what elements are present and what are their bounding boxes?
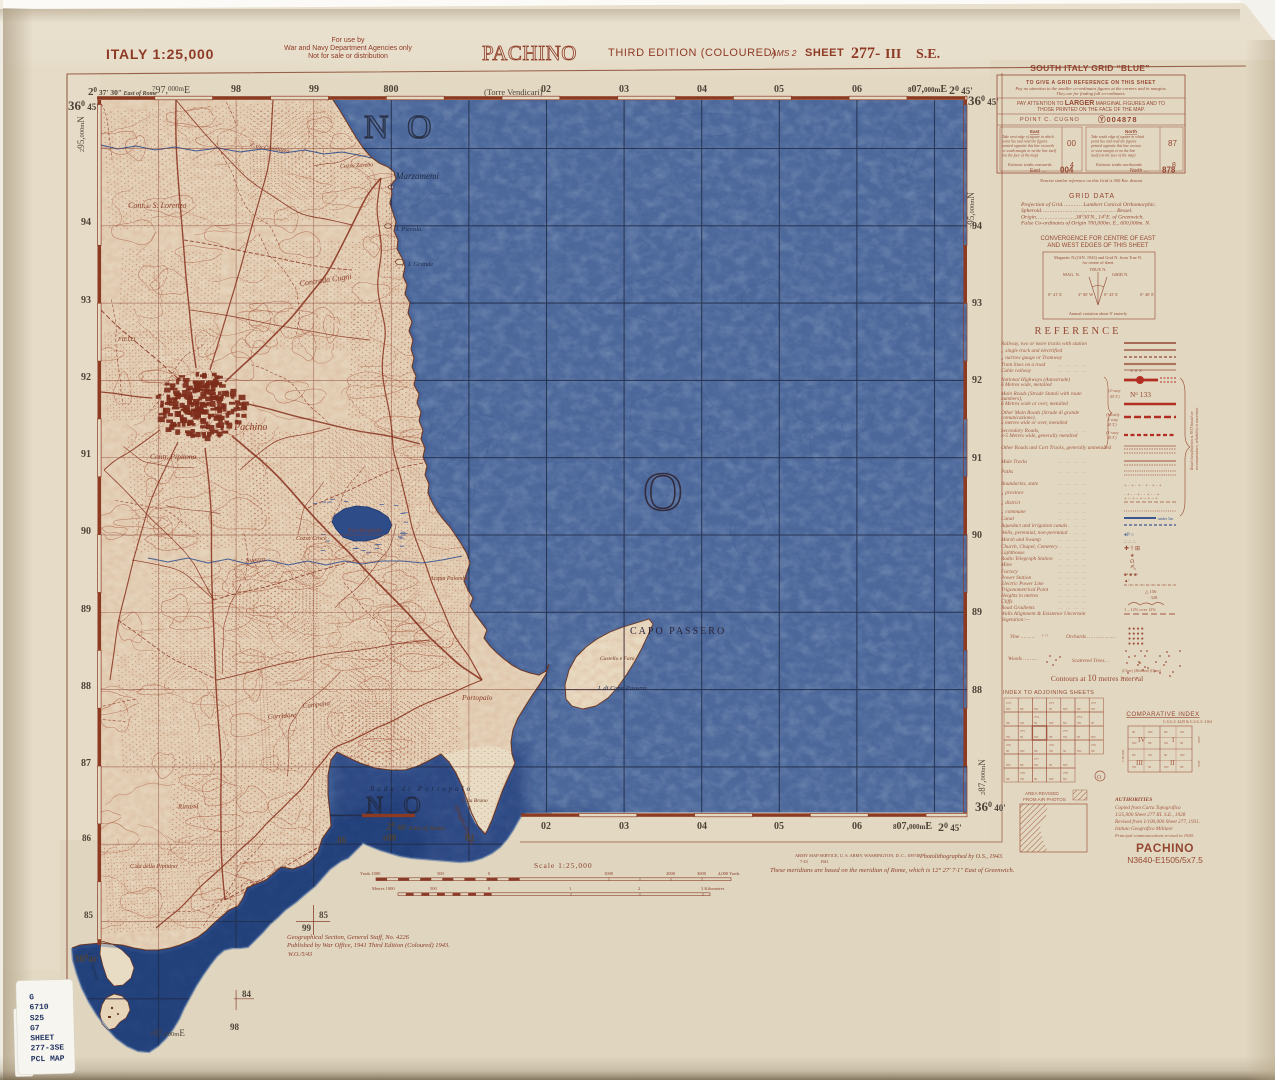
svg-text:99: 99 bbox=[302, 923, 312, 933]
svg-text:278: 278 bbox=[1063, 771, 1068, 775]
svg-text:Estimate tenths northwards: Estimate tenths northwards bbox=[1095, 162, 1142, 167]
svg-text:SE: SE bbox=[1034, 722, 1038, 725]
svg-text:06: 06 bbox=[852, 821, 862, 832]
svg-text:Acqua Palomba: Acqua Palomba bbox=[429, 576, 469, 582]
svg-text:… … … …: … … … … bbox=[1058, 500, 1087, 505]
svg-text:NE: NE bbox=[1049, 736, 1053, 739]
svg-text:Canal: Canal bbox=[1001, 516, 1014, 522]
svg-text:… … … …: … … … … bbox=[1058, 569, 1087, 574]
svg-text:Portopalo: Portopalo bbox=[461, 693, 493, 702]
svg-text:N O: N O bbox=[364, 109, 437, 146]
svg-text:NE: NE bbox=[1180, 766, 1184, 769]
svg-text:… … … …: … … … … bbox=[1058, 523, 1087, 528]
svg-text:MAG. N.: MAG. N. bbox=[1063, 272, 1080, 277]
svg-text:II: II bbox=[1170, 759, 1175, 767]
svg-text:… … … …: … … … … bbox=[1058, 469, 1087, 474]
svg-text:275: 275 bbox=[1063, 729, 1068, 733]
svg-text:SW: SW bbox=[1148, 754, 1153, 757]
svg-text:SOUTH ITALY GRID “BLUE”: SOUTH ITALY GRID “BLUE” bbox=[1030, 63, 1150, 73]
svg-text:Photolithographed by O.S., 194: Photolithographed by O.S., 1943. bbox=[919, 853, 1003, 860]
svg-text:800: 800 bbox=[384, 84, 399, 95]
svg-text:or west margin or on the: or west margin or on the line bbox=[1091, 149, 1135, 153]
svg-text:Svezza: Svezza bbox=[245, 554, 266, 565]
svg-text:… … … …: … … … … bbox=[1058, 530, 1087, 535]
svg-text:COMPARATIVE INDEX: COMPARATIVE INDEX bbox=[1126, 711, 1199, 718]
svg-text:90: 90 bbox=[81, 526, 91, 537]
svg-text:20 45': 20 45' bbox=[938, 820, 962, 834]
svg-text:I. Grande: I. Grande bbox=[407, 261, 433, 268]
svg-text:SE: SE bbox=[1020, 736, 1024, 739]
svg-text:GRID N.: GRID N. bbox=[1112, 272, 1129, 277]
svg-text:93: 93 bbox=[972, 298, 982, 309]
svg-text:3-5 Metres wide, generally met: 3-5 Metres wide, generally metalled bbox=[1001, 433, 1078, 439]
svg-text:88: 88 bbox=[972, 685, 982, 696]
svg-text:✕ ✕ ✕: ✕ ✕ ✕ bbox=[1130, 368, 1142, 373]
svg-text:NE: NE bbox=[1148, 742, 1152, 745]
svg-text:War and Navy Department Agenci: War and Navy Department Agencies only bbox=[284, 45, 412, 52]
svg-text:For use by: For use by bbox=[331, 37, 365, 44]
svg-text:86: 86 bbox=[82, 833, 92, 843]
svg-text:06: 06 bbox=[852, 84, 862, 95]
svg-text:05: 05 bbox=[774, 84, 784, 95]
svg-text:0° 46′ E: 0° 46′ E bbox=[1140, 292, 1154, 297]
svg-text:… … … …: … … … … bbox=[1058, 362, 1087, 367]
svg-text:Principal communications revis: Principal communications revised in 1940… bbox=[1114, 833, 1194, 838]
svg-text:O: O bbox=[1097, 775, 1102, 781]
svg-text:⛏: ⛏ bbox=[1130, 564, 1136, 571]
svg-text:They are for finding full co-o: They are for finding full co-ordinates. bbox=[1056, 91, 1125, 96]
svg-text:Annual variation about 8′ east: Annual variation about 8′ easterly bbox=[1069, 311, 1128, 316]
svg-text:277-3SE: 277-3SE bbox=[30, 1044, 64, 1054]
svg-text:86: 86 bbox=[337, 835, 347, 845]
svg-text:REFERENCE: REFERENCE bbox=[1034, 326, 1121, 337]
svg-text:NE: NE bbox=[1063, 778, 1067, 781]
svg-text:6710: 6710 bbox=[29, 1003, 49, 1013]
svg-text:point lies and read the f: point lies and read the figures bbox=[1090, 140, 1137, 144]
svg-text:✚ † ⊞: ✚ † ⊞ bbox=[1124, 545, 1140, 552]
svg-text:East: East bbox=[1030, 129, 1040, 134]
svg-text:… … … …: … … … … bbox=[1058, 481, 1087, 486]
svg-text:NE: NE bbox=[1020, 764, 1024, 767]
svg-text:Contours at 10 metres interval: Contours at 10 metres interval bbox=[1051, 673, 1143, 683]
svg-text:Projection of Grid………… Lambert: Projection of Grid………… Lambert Conical O… bbox=[1020, 201, 1156, 208]
svg-text:SW: SW bbox=[1006, 736, 1011, 739]
svg-text:Paths: Paths bbox=[1000, 469, 1013, 475]
svg-text:G.S.G.S. 4229 & G.S.G.S. 416: G.S.G.S. 4229 & G.S.G.S. 4164 bbox=[1163, 720, 1212, 724]
svg-text:SE: SE bbox=[1063, 750, 1067, 753]
svg-text:PCL MAP: PCL MAP bbox=[31, 1054, 65, 1064]
svg-text:Woods ………: Woods ……… bbox=[1008, 656, 1038, 662]
svg-text:AMS 2: AMS 2 bbox=[770, 48, 797, 58]
svg-text:94: 94 bbox=[81, 217, 91, 228]
svg-text:04: 04 bbox=[697, 84, 707, 95]
svg-text:NE: NE bbox=[1034, 750, 1038, 753]
svg-text:Metres 1000: Metres 1000 bbox=[372, 886, 395, 891]
svg-text:printed opposite this line on: printed opposite this line on north bbox=[1001, 144, 1054, 148]
svg-text:Rada di Portopalo: Rada di Portopalo bbox=[369, 785, 473, 793]
svg-text:C.da della Pipituna: C.da della Pipituna bbox=[130, 864, 177, 870]
svg-text:Other Roads and Cart Tracks, g: Other Roads and Cart Tracks, generally u… bbox=[1001, 445, 1112, 451]
svg-text:276: 276 bbox=[1049, 743, 1054, 747]
svg-text:3° 06′ W: 3° 06′ W bbox=[1078, 292, 1094, 297]
svg-text:NE: NE bbox=[1132, 754, 1136, 757]
svg-text:Rinassi: Rinassi bbox=[177, 802, 199, 811]
svg-text:SE: SE bbox=[1148, 766, 1152, 769]
svg-text:1 – 12% over 12%: 1 – 12% over 12% bbox=[1124, 607, 1156, 612]
svg-text:SW: SW bbox=[1091, 708, 1096, 711]
svg-text:PACHINO: PACHINO bbox=[1136, 841, 1194, 855]
svg-text:Vine ………: Vine ……… bbox=[1010, 634, 1035, 640]
svg-text:89: 89 bbox=[972, 607, 982, 618]
svg-text:☊: ☊ bbox=[1130, 559, 1135, 565]
svg-text:AUTHORITIES: AUTHORITIES bbox=[1114, 797, 1152, 803]
svg-text:1: 1 bbox=[569, 886, 571, 891]
svg-text:NE: NE bbox=[1164, 731, 1168, 734]
svg-text:NE: NE bbox=[1091, 750, 1095, 753]
svg-text:NW: NW bbox=[1020, 750, 1025, 753]
svg-text:… … … …: … … … … bbox=[1058, 490, 1087, 495]
svg-text:0° 41′ E: 0° 41′ E bbox=[1048, 292, 1062, 297]
svg-text:Mine: Mine bbox=[1000, 562, 1013, 568]
svg-text:… … … …: … … … … bbox=[1058, 593, 1087, 598]
svg-text:… … … …: … … … … bbox=[1058, 562, 1087, 567]
svg-text:SE: SE bbox=[1091, 722, 1095, 725]
svg-text:East …: East … bbox=[1030, 168, 1046, 174]
svg-text:INDEX TO ADJOINING SHEETS: INDEX TO ADJOINING SHEETS bbox=[1003, 690, 1094, 696]
svg-text:0° 43′ E: 0° 43′ E bbox=[1104, 292, 1118, 297]
svg-text:Istituto Geografico Militare: Istituto Geografico Militare bbox=[1114, 825, 1173, 832]
svg-text:NW: NW bbox=[1180, 754, 1185, 757]
svg-text:for centre of sheet: for centre of sheet bbox=[1082, 260, 1114, 265]
svg-text:275: 275 bbox=[1020, 729, 1025, 733]
svg-text:… … … …: … … … … bbox=[1058, 368, 1087, 373]
svg-text:●P ○: ●P ○ bbox=[1124, 533, 1134, 538]
svg-text:276: 276 bbox=[1091, 743, 1096, 747]
svg-text:SE: SE bbox=[1006, 750, 1010, 753]
svg-text:Pachino: Pachino bbox=[233, 422, 267, 433]
svg-text:SW: SW bbox=[1020, 722, 1025, 725]
svg-text:… … … …: … … … … bbox=[1058, 516, 1087, 521]
svg-text:Yards 1000: Yards 1000 bbox=[360, 871, 381, 876]
svg-text:M.T.): M.T.) bbox=[1109, 394, 1120, 399]
svg-text:807,000mE: 807,000mE bbox=[908, 84, 947, 95]
svg-text:03: 03 bbox=[619, 84, 629, 95]
svg-text:★: ★ bbox=[1130, 553, 1135, 559]
svg-text:Marzamemi: Marzamemi bbox=[395, 171, 439, 181]
svg-text:Nearest similar reference on t: Nearest similar reference on this Grid i… bbox=[1039, 178, 1143, 183]
svg-text:85: 85 bbox=[84, 910, 94, 920]
svg-text:… … … …: … … … … bbox=[1058, 556, 1087, 561]
svg-text:TRUE N.: TRUE N. bbox=[1089, 267, 1106, 272]
svg-text:NW: NW bbox=[1164, 766, 1169, 769]
svg-text:93: 93 bbox=[81, 295, 91, 306]
svg-text:under 5m: under 5m bbox=[1158, 516, 1174, 521]
svg-text:90: 90 bbox=[972, 530, 982, 541]
svg-text:… … … …: … … … … bbox=[1058, 575, 1087, 580]
svg-text:M.T.): M.T.) bbox=[1106, 422, 1117, 427]
svg-text:807,000mE: 807,000mE bbox=[893, 821, 932, 832]
svg-text:274: 274 bbox=[1034, 715, 1039, 719]
svg-text:(2-way: (2-way bbox=[1108, 388, 1121, 393]
svg-text:2: 2 bbox=[638, 886, 640, 891]
svg-text:SE: SE bbox=[1034, 778, 1038, 781]
svg-text:W.O./5/43: W.O./5/43 bbox=[288, 951, 312, 958]
svg-text:SW: SW bbox=[1049, 750, 1054, 753]
svg-text:N3640-E1505/5x7.5: N3640-E1505/5x7.5 bbox=[1127, 855, 1203, 865]
svg-text:Scale 1:25,000: Scale 1:25,000 bbox=[534, 861, 593, 870]
svg-text:87: 87 bbox=[1168, 139, 1177, 148]
svg-text:276: 276 bbox=[1006, 743, 1011, 747]
svg-text:CONVERGENCE FOR CENTRE OF EAST: CONVERGENCE FOR CENTRE OF EAST bbox=[1040, 236, 1155, 242]
svg-text:SW: SW bbox=[1063, 736, 1068, 739]
svg-text:● ● ● ●: ● ● ● ● bbox=[1128, 642, 1144, 647]
svg-text:SW: SW bbox=[1077, 722, 1082, 725]
svg-text:NW: NW bbox=[1006, 764, 1011, 767]
svg-text:Spheroid……………………………………… Bessel: Spheroid……………………………………… Bessel. bbox=[1021, 208, 1133, 214]
svg-text:… … … …: … … … … bbox=[1058, 459, 1087, 464]
svg-text:Marsh and Swamp: Marsh and Swamp bbox=[1000, 537, 1041, 543]
svg-text:SW: SW bbox=[1034, 708, 1039, 711]
svg-text:„ narrow gauge or Tramway: „ narrow gauge or Tramway bbox=[1001, 355, 1063, 361]
svg-text:Boundaries, state: Boundaries, state bbox=[1001, 481, 1039, 487]
svg-text:(Torre Vendicari): (Torre Vendicari) bbox=[484, 87, 543, 97]
svg-text:NW: NW bbox=[1063, 764, 1068, 767]
svg-text:NW: NW bbox=[1091, 736, 1096, 739]
svg-text:THIRD EDITION (COLOURED): THIRD EDITION (COLOURED) bbox=[608, 47, 776, 59]
svg-text:00: 00 bbox=[1067, 139, 1076, 148]
svg-text:SE: SE bbox=[1077, 736, 1081, 739]
svg-text:FROM AIR PHOTOS: FROM AIR PHOTOS bbox=[1023, 797, 1066, 802]
svg-text:3000: 3000 bbox=[697, 871, 707, 876]
svg-text:878: 878 bbox=[1162, 166, 1176, 175]
svg-text:Orchards ………………: Orchards ……………… bbox=[1066, 634, 1116, 640]
svg-text:False Co-ordinates of Origin 7: False Co-ordinates of Origin 700,000m. E… bbox=[1020, 220, 1150, 227]
svg-text:500: 500 bbox=[437, 871, 445, 876]
svg-text:88: 88 bbox=[81, 681, 91, 692]
svg-text:„ province: „ province bbox=[1001, 490, 1024, 496]
svg-text:… … … …: … … … … bbox=[1058, 587, 1087, 592]
svg-text:ᵗ ᵗ ᵗ: ᵗ ᵗ ᵗ bbox=[1042, 634, 1049, 640]
svg-text:SE: SE bbox=[1049, 764, 1053, 767]
svg-text:800: 800 bbox=[383, 833, 397, 844]
svg-text:NW: NW bbox=[1049, 778, 1054, 781]
svg-text:N O: N O bbox=[366, 793, 428, 819]
svg-text:SE: SE bbox=[1132, 731, 1136, 734]
svg-text:NE: NE bbox=[1006, 778, 1010, 781]
svg-text:M.T.): M.T.) bbox=[1106, 435, 1117, 440]
svg-text:(Clear) (Medium) (Open): (Clear) (Medium) (Open) bbox=[1122, 669, 1162, 673]
svg-text:AND WEST EDGES OF THIS SHEET: AND WEST EDGES OF THIS SHEET bbox=[1047, 243, 1148, 249]
svg-text:Published by War Office, 1941: Published by War Office, 1941 Third Edit… bbox=[286, 942, 450, 949]
svg-text:III: III bbox=[885, 47, 901, 62]
svg-text:99: 99 bbox=[309, 84, 319, 95]
svg-text:+ – + – + – + – +: + – + – + – + – + bbox=[1124, 497, 1158, 502]
svg-text:P.no Morghella: P.no Morghella bbox=[347, 528, 382, 534]
svg-text:5 metres wide or over, metalle: 5 metres wide or over, metalled bbox=[1001, 420, 1068, 426]
svg-text:84: 84 bbox=[242, 989, 252, 999]
svg-text:6 Metres wide or over, metalle: 6 Metres wide or over, metalled bbox=[1001, 401, 1068, 407]
svg-text:„ district: „ district bbox=[1001, 500, 1021, 506]
svg-text:Geographical Section, General: Geographical Section, General Staff, No.… bbox=[287, 934, 410, 941]
svg-text:… … … …: … … … … bbox=[1058, 581, 1087, 586]
svg-text:274: 274 bbox=[1077, 715, 1082, 719]
svg-text:92: 92 bbox=[972, 375, 982, 386]
svg-text:02: 02 bbox=[541, 821, 551, 832]
svg-text:IV: IV bbox=[1138, 736, 1145, 744]
svg-text:„ single track and electrif: „ single track and electrified bbox=[1001, 347, 1063, 354]
svg-text:89: 89 bbox=[81, 604, 91, 615]
svg-text:SW: SW bbox=[1034, 764, 1039, 767]
svg-text:Not for sale or distribution: Not for sale or distribution bbox=[308, 53, 388, 60]
svg-text:I. Piccola: I. Piccola bbox=[395, 226, 421, 233]
svg-text:■ʰ ■ᵗ ■ʳ: ■ʰ ■ᵗ ■ʳ bbox=[1124, 572, 1138, 577]
svg-text:S25: S25 bbox=[30, 1014, 45, 1023]
svg-text:NE: NE bbox=[1063, 722, 1067, 725]
svg-text:SE: SE bbox=[1164, 754, 1168, 757]
svg-text:△ 156: △ 156 bbox=[1145, 589, 1157, 594]
svg-text:CAPO PASSERO: CAPO PASSERO bbox=[630, 626, 726, 637]
svg-text:02: 02 bbox=[541, 84, 551, 95]
svg-text:2000: 2000 bbox=[666, 871, 676, 876]
svg-text:I. di Capo Passero: I. di Capo Passero bbox=[597, 685, 647, 692]
svg-text:NW: NW bbox=[1006, 708, 1011, 711]
svg-text:G: G bbox=[29, 993, 34, 1002]
svg-text:… … … …: … … … … bbox=[1058, 537, 1087, 542]
svg-text:(on the face of the map): (on the face of the map) bbox=[1002, 153, 1039, 157]
svg-text:6 Metres wide, metalled: 6 Metres wide, metalled bbox=[1001, 382, 1052, 388]
svg-text:III: III bbox=[1136, 759, 1144, 767]
svg-text:Estimate tenths eastwards: Estimate tenths eastwards bbox=[1007, 162, 1052, 167]
svg-text:POINT C. CUGNO: POINT C. CUGNO bbox=[1020, 117, 1080, 123]
svg-text:∴ ∴ ∴: ∴ ∴ ∴ bbox=[1124, 540, 1136, 545]
svg-text:91: 91 bbox=[81, 449, 91, 460]
svg-text:278: 278 bbox=[1020, 771, 1025, 775]
svg-text:1/25,000 Sheet 277 III. S.E.: 1/25,000 Sheet 277 III. S.E., 1928 bbox=[1115, 812, 1186, 818]
svg-text:North …: North … bbox=[1130, 168, 1149, 174]
svg-text:O: O bbox=[643, 461, 683, 522]
svg-text:4229: 4229 bbox=[1197, 736, 1201, 743]
svg-text:7-43 1941: 7-43 1941 bbox=[800, 859, 829, 864]
svg-text:05: 05 bbox=[774, 821, 784, 832]
svg-text:Cable railway: Cable railway bbox=[1001, 368, 1032, 374]
svg-text:Cozzo Croce: Cozzo Croce bbox=[296, 536, 327, 542]
svg-text:Railway, two or more tracks wi: Railway, two or more tracks with station bbox=[1000, 341, 1087, 347]
svg-text:87: 87 bbox=[81, 758, 91, 769]
svg-text:… … … …: … … … … bbox=[1058, 605, 1087, 610]
svg-text:92: 92 bbox=[81, 372, 91, 383]
svg-text:Mule Tracks: Mule Tracks bbox=[1000, 459, 1027, 465]
svg-text:„ commune: „ commune bbox=[1001, 509, 1026, 515]
svg-text:Vegetation:—: Vegetation:— bbox=[1001, 617, 1030, 623]
svg-text:NW: NW bbox=[1132, 742, 1137, 745]
svg-text:NW: NW bbox=[1077, 750, 1082, 753]
svg-text:PACHINO: PACHINO bbox=[482, 41, 577, 65]
svg-text:273: 273 bbox=[1049, 701, 1054, 705]
svg-text:North: North bbox=[1125, 129, 1137, 134]
svg-text:01: 01 bbox=[465, 833, 475, 844]
svg-text:1000: 1000 bbox=[604, 871, 614, 876]
svg-text:point lies and read the f: point lies and read the figures bbox=[1001, 140, 1048, 144]
svg-text:277-: 277- bbox=[851, 45, 880, 62]
svg-text:G7: G7 bbox=[30, 1024, 40, 1033]
svg-text:04: 04 bbox=[697, 821, 707, 832]
svg-text:S.E.: S.E. bbox=[916, 47, 940, 62]
svg-text:NE: NE bbox=[1077, 708, 1081, 711]
svg-text:THOSE PRINTED ON THE FACE OF T: THOSE PRINTED ON THE FACE OF THE MAP. bbox=[1037, 107, 1145, 113]
svg-text:NW: NW bbox=[1049, 722, 1054, 725]
svg-text:NW: NW bbox=[1063, 708, 1068, 711]
svg-text:… … … …: … … … … bbox=[1058, 544, 1087, 549]
svg-text:NE: NE bbox=[1006, 722, 1010, 725]
svg-text:Scattered Trees…: Scattered Trees… bbox=[1072, 658, 1109, 664]
svg-text:Cliffs: Cliffs bbox=[1001, 598, 1012, 605]
svg-text:printed opposite this line on: printed opposite this line on east bbox=[1090, 144, 1142, 148]
svg-text:SW: SW bbox=[1132, 766, 1137, 769]
svg-text:· 328: · 328 bbox=[1148, 595, 1158, 600]
svg-text:SHEET: SHEET bbox=[805, 47, 844, 59]
svg-text:ITALY 1:25,000: ITALY 1:25,000 bbox=[106, 46, 214, 62]
svg-text:… … … …: … … … … bbox=[1058, 599, 1087, 604]
svg-text:4164: 4164 bbox=[1197, 760, 1201, 767]
svg-text:Revised from 1/100,000 Sheet: Revised from 1/100,000 Sheet 277, 1931. bbox=[1114, 818, 1200, 825]
svg-text:SE: SE bbox=[1180, 742, 1184, 745]
svg-text:FIELD: FIELD bbox=[117, 337, 136, 343]
svg-text:3 Kilometres: 3 Kilometres bbox=[701, 886, 725, 891]
svg-text:… … … …: … … … … bbox=[1058, 550, 1087, 555]
svg-text:Castello e Faro: Castello e Faro bbox=[600, 656, 635, 662]
svg-text:85: 85 bbox=[319, 910, 329, 920]
svg-text:or south margin or on the line: or south margin or on the line itself bbox=[1002, 149, 1057, 153]
svg-text:+ · + · + · + · + · +: + · + · + · + · + · + bbox=[1124, 484, 1162, 489]
svg-text:Contr. Pipitona: Contr. Pipitona bbox=[150, 452, 197, 461]
svg-text:itself (on the face of the map: itself (on the face of the map) bbox=[1091, 153, 1136, 157]
svg-text:Take west edge of square in wh: Take west edge of square in which bbox=[1002, 135, 1054, 139]
svg-text:Ⓨ004878: Ⓨ004878 bbox=[1098, 114, 1138, 124]
svg-text:98: 98 bbox=[231, 84, 241, 95]
svg-text:NE: NE bbox=[1020, 708, 1024, 711]
svg-text:Copied from Carta Topografica: Copied from Carta Topografica bbox=[1115, 804, 1181, 811]
svg-text:273: 273 bbox=[1091, 701, 1096, 705]
svg-text:273: 273 bbox=[1006, 701, 1011, 705]
svg-text:Take south edge of square in w: Take south edge of square in which bbox=[1091, 135, 1144, 139]
svg-text:03: 03 bbox=[619, 821, 629, 832]
svg-text:▲ᵗ: ▲ᵗ bbox=[1124, 578, 1129, 583]
svg-text:SHEET: SHEET bbox=[30, 1034, 54, 1044]
svg-text:C.da Bruno: C.da Bruno bbox=[462, 798, 488, 804]
svg-text:500: 500 bbox=[430, 886, 438, 891]
svg-text:These meridians are based on t: These meridians are based on the meridia… bbox=[770, 867, 1015, 874]
svg-text:NW: NW bbox=[1034, 736, 1039, 739]
svg-text:98: 98 bbox=[230, 1022, 240, 1032]
svg-text:… … … …: … … … … bbox=[1058, 509, 1087, 514]
svg-text:277: 277 bbox=[1034, 757, 1039, 761]
svg-text:SW: SW bbox=[1020, 778, 1025, 781]
svg-text:AREA REVISED: AREA REVISED bbox=[1025, 791, 1059, 796]
svg-text:NW: NW bbox=[1148, 731, 1153, 734]
svg-text:PAY ATTENTION TO LARGER MARGIN: PAY ATTENTION TO LARGER MARGINAL FIGURES… bbox=[1017, 100, 1165, 107]
svg-text:91: 91 bbox=[972, 453, 982, 464]
svg-text:No 133: No 133 bbox=[1130, 390, 1151, 399]
svg-text:SW: SW bbox=[1180, 731, 1185, 734]
svg-text:SW: SW bbox=[1164, 742, 1169, 745]
svg-text:SE: SE bbox=[1049, 708, 1053, 711]
svg-text:Origin……………………38°30′N., 14°E.: Origin……………………38°30′N., 14°E. of Greenwi… bbox=[1021, 213, 1144, 220]
svg-text:Cont.da S. Lorenzo: Cont.da S. Lorenzo bbox=[128, 201, 187, 210]
svg-text:GRID DATA: GRID DATA bbox=[1069, 193, 1115, 200]
